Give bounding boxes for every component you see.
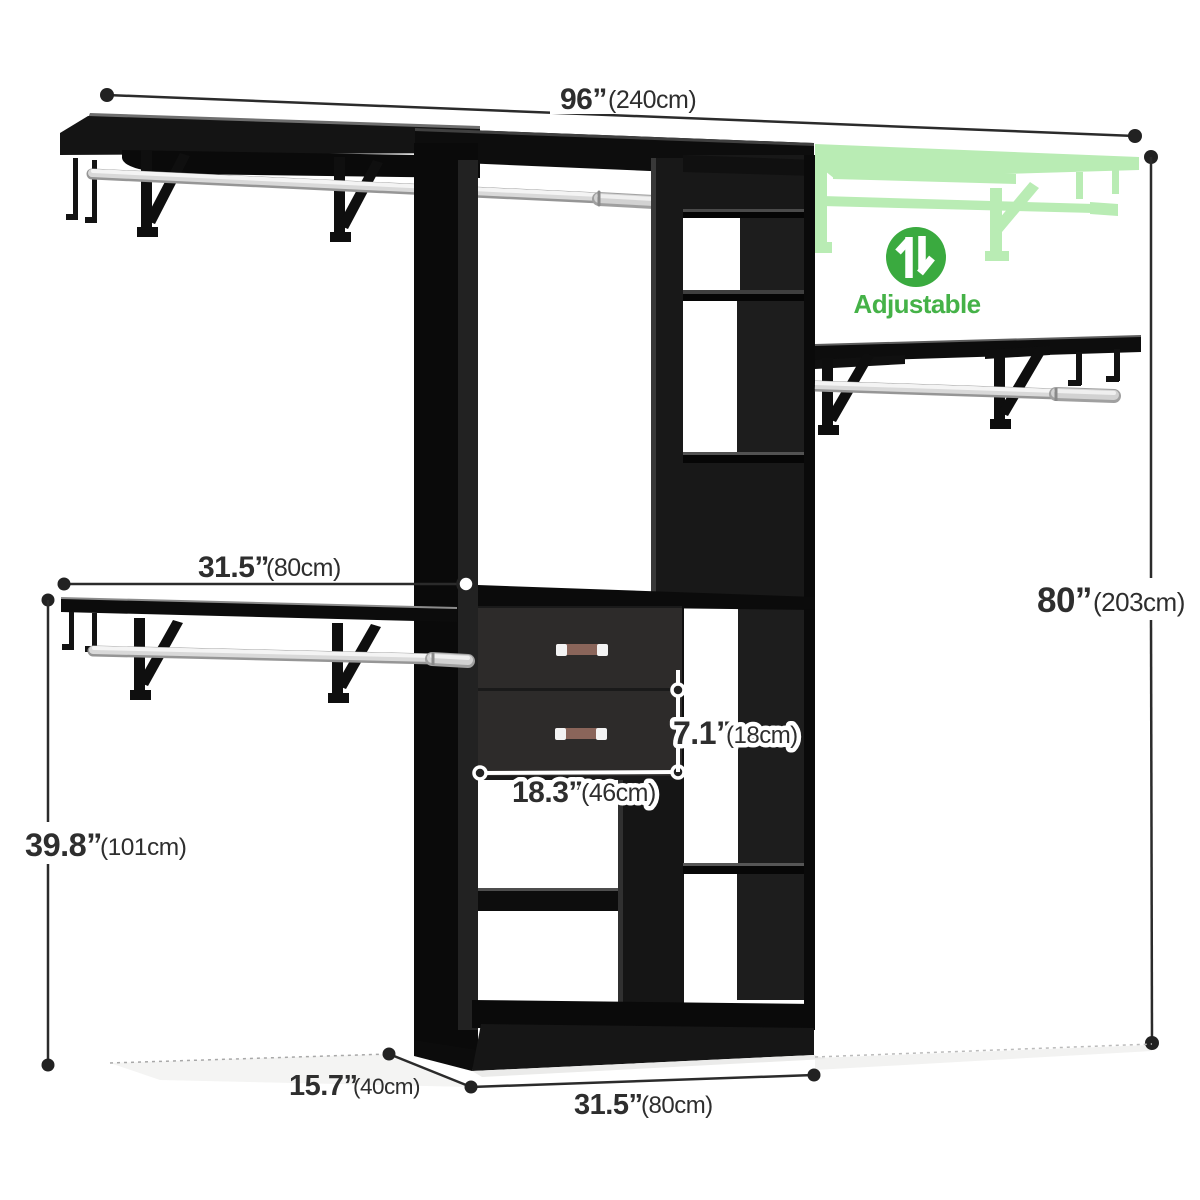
svg-text:31.5”: 31.5” (574, 1089, 642, 1121)
svg-text:31.5”: 31.5” (198, 551, 269, 584)
svg-text:(240cm): (240cm) (608, 86, 696, 114)
svg-text:(203cm): (203cm) (1093, 587, 1185, 617)
svg-text:96”: 96” (560, 83, 607, 116)
svg-text:(80cm): (80cm) (641, 1092, 713, 1119)
svg-text:(40cm): (40cm) (353, 1074, 420, 1099)
svg-text:80”: 80” (1037, 581, 1092, 620)
svg-text:Adjustable: Adjustable (854, 289, 981, 319)
svg-text:(46cm): (46cm) (581, 779, 656, 807)
svg-text:15.7”: 15.7” (289, 1070, 357, 1102)
svg-text:39.8”: 39.8” (25, 827, 102, 863)
svg-text:7.1”: 7.1” (673, 715, 731, 751)
svg-text:18.3”: 18.3” (512, 776, 583, 809)
svg-text:(18cm): (18cm) (726, 722, 798, 749)
svg-text:(101cm): (101cm) (100, 834, 186, 861)
svg-text:(80cm): (80cm) (266, 554, 341, 582)
